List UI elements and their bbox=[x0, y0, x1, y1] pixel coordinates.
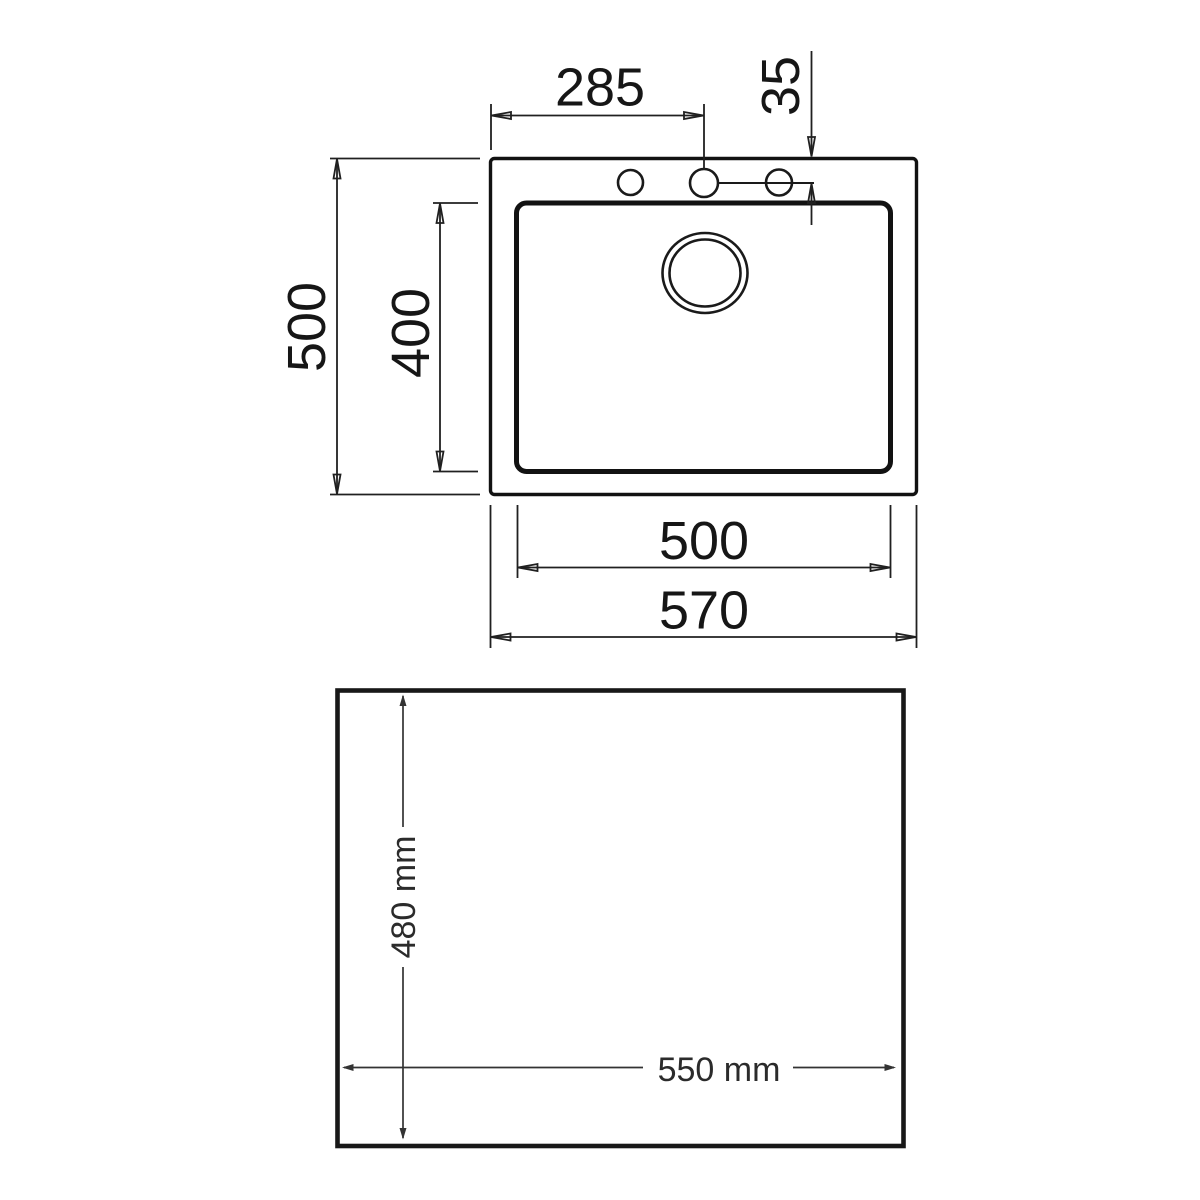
svg-text:480 mm: 480 mm bbox=[385, 836, 423, 959]
svg-text:35: 35 bbox=[751, 56, 811, 116]
svg-text:500: 500 bbox=[659, 511, 749, 571]
svg-text:500: 500 bbox=[277, 282, 337, 372]
svg-text:550 mm: 550 mm bbox=[658, 1051, 781, 1089]
svg-text:400: 400 bbox=[381, 288, 441, 378]
svg-text:570: 570 bbox=[659, 581, 749, 641]
svg-text:285: 285 bbox=[555, 58, 645, 118]
